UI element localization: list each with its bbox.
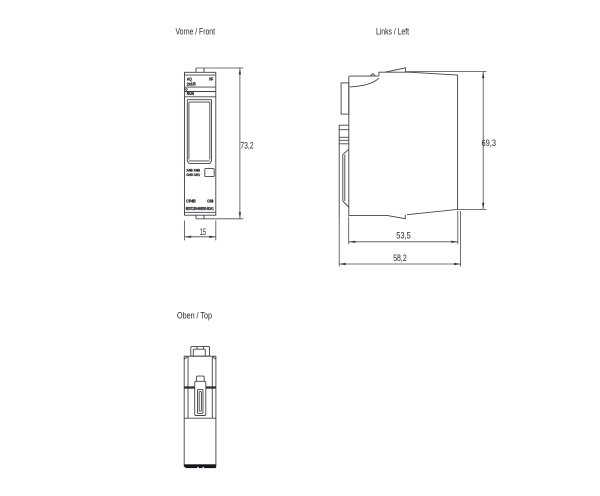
svg-text:58,2: 58,2 [393, 253, 407, 263]
svg-text:15: 15 [200, 227, 206, 237]
svg-text:C08: C08 [207, 198, 214, 203]
svg-text:Vorne / Front: Vorne / Front [176, 27, 216, 37]
svg-text:RUN: RUN [187, 91, 194, 96]
svg-text:CP4B: CP4B [186, 198, 195, 203]
svg-text:Links / Left: Links / Left [376, 27, 409, 37]
svg-text:6ES7135-6HB00-0DA1: 6ES7135-6HB00-0DA1 [186, 206, 214, 211]
svg-text:CH0 CH1: CH0 CH1 [186, 173, 200, 177]
svg-text:HF: HF [209, 76, 213, 81]
svg-text:Oben / Top: Oben / Top [177, 311, 212, 321]
svg-text:2xU/I: 2xU/I [187, 81, 196, 86]
svg-text:53,5: 53,5 [396, 231, 411, 241]
svg-text:73,2: 73,2 [240, 141, 253, 151]
svg-text:69,3: 69,3 [482, 138, 497, 148]
